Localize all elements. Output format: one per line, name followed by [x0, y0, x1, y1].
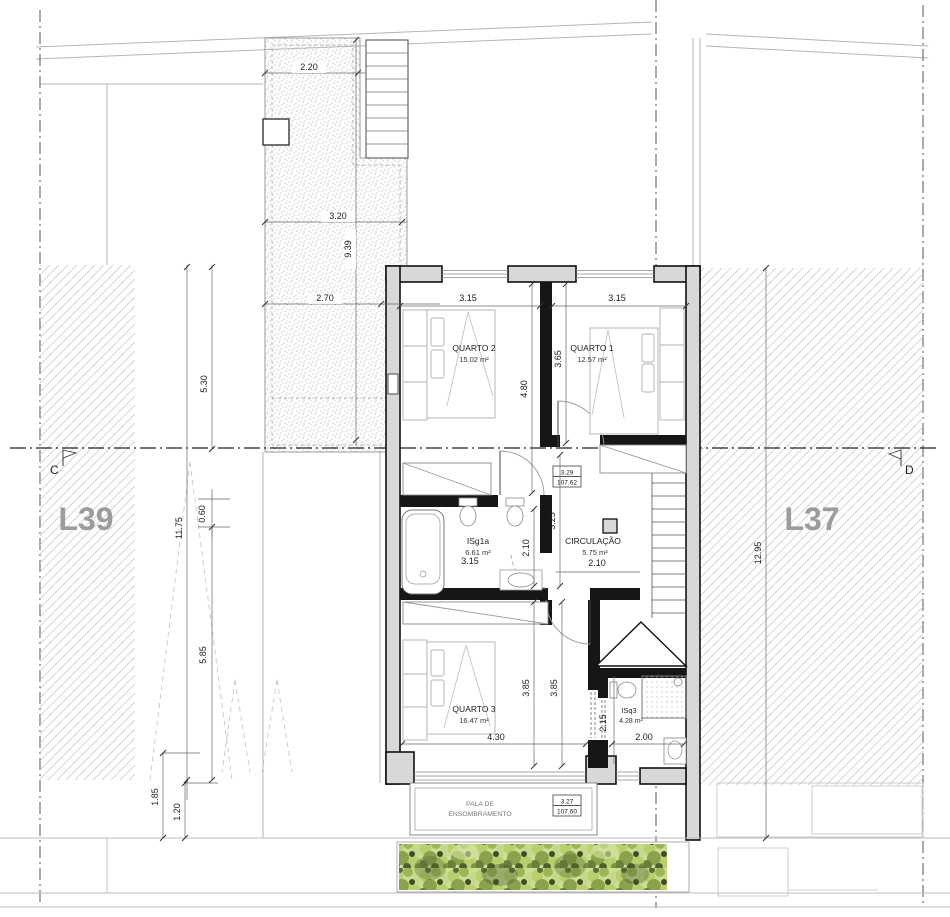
dim-isq3-height: 2.15: [598, 714, 608, 732]
neighbour-paving: [717, 783, 923, 896]
patio-pillar: [263, 119, 289, 145]
exterior-stair-icon: [366, 40, 408, 158]
room-area-isg1a: 6.61 m²: [465, 548, 491, 557]
dim-quarto3-height-a: 3.85: [521, 679, 531, 697]
dim-left-offset: 0.60: [197, 505, 207, 523]
dim-isq3-width: 2.00: [635, 732, 653, 742]
column: [603, 519, 617, 533]
room-label-quarto2: QUARTO 2: [452, 343, 495, 353]
closet-icon: [403, 602, 548, 624]
room-label-quarto3: QUARTO 3: [452, 704, 495, 714]
dim-circ-height: 3.25: [547, 512, 557, 530]
room-label-quarto1: QUARTO 1: [570, 343, 613, 353]
dim-isg1a-width: 3.15: [461, 556, 479, 566]
left-wall-window: [388, 374, 398, 394]
dim-quarto1-height: 3.65: [553, 350, 563, 368]
dim-quarto3-width: 4.30: [487, 732, 505, 742]
projection-lines: [150, 462, 292, 780]
room-area-quarto3: 16.47 m²: [459, 716, 489, 725]
section-marker-c: C: [50, 463, 59, 477]
closet-icon: [403, 463, 491, 495]
dim-left-total: 11.75: [174, 517, 184, 539]
dim-bottom-a: 1.85: [150, 788, 160, 806]
room-area-quarto1: 12.57 m²: [577, 355, 607, 364]
wardrobe-icon: [403, 310, 427, 420]
lot-label-l39: L39: [58, 501, 113, 537]
dim-bottom-b: 1.20: [172, 803, 182, 821]
level-lower-value: 3.27: [561, 799, 574, 806]
bed-icon: [427, 310, 495, 418]
floor-plan-canvas: L39 L37 C D: [0, 0, 950, 917]
planter: [397, 842, 689, 892]
dim-right-total: 12.95: [753, 542, 763, 565]
dim-patio-depth: 9.39: [343, 240, 353, 258]
wardrobe-icon: [660, 308, 684, 420]
room-label-circulacao: CIRCULAÇÃO: [565, 536, 621, 546]
dim-quarto2-width: 3.15: [459, 293, 477, 303]
dim-left-lower: 5.85: [198, 646, 208, 664]
dim-patio-top: 2.20: [300, 62, 318, 72]
floor-plan-svg: L39 L37 C D: [0, 0, 950, 917]
level-upper-value: 3.29: [561, 470, 574, 477]
room-area-quarto2: 15.02 m²: [459, 355, 489, 364]
level-marker-lower: 3.27 107.60: [553, 795, 581, 816]
room-area-isq3: 4.28 m²: [619, 718, 643, 725]
dim-left-upper: 5.30: [199, 375, 209, 393]
pala-label-line2: ENSOMBRAMENTO: [448, 811, 511, 818]
shower-icon: [642, 676, 686, 718]
dim-patio-mid: 3.20: [329, 211, 347, 221]
lot-label-l37: L37: [784, 501, 839, 537]
sink-icon: [500, 570, 542, 590]
dim-quarto3-height-b: 3.85: [549, 679, 559, 697]
toilet-icon: [459, 498, 477, 526]
dim-circ-width: 2.10: [588, 558, 606, 568]
level-marker-upper: 3.29 107.62: [553, 466, 581, 487]
section-marker-d: D: [905, 463, 914, 477]
room-label-isq3: ISq3: [621, 706, 636, 715]
dim-quarto2-height: 4.80: [519, 380, 529, 398]
sink-icon: [664, 738, 686, 764]
dim-patio-low: 2.70: [316, 293, 334, 303]
level-lower-elevation: 107.60: [557, 809, 577, 816]
bathtub-icon: [402, 510, 444, 594]
wardrobe-icon: [403, 640, 427, 740]
room-area-circulacao: 5.75 m²: [582, 548, 608, 557]
closet-icon: [600, 445, 686, 473]
pala-label-line1: PALA DE: [466, 801, 494, 808]
dim-isg1a-height: 2.10: [521, 539, 531, 557]
bidet-icon: [506, 498, 524, 526]
dim-quarto1-width: 3.15: [608, 293, 626, 303]
room-label-isg1a: ISg1a: [467, 536, 489, 546]
